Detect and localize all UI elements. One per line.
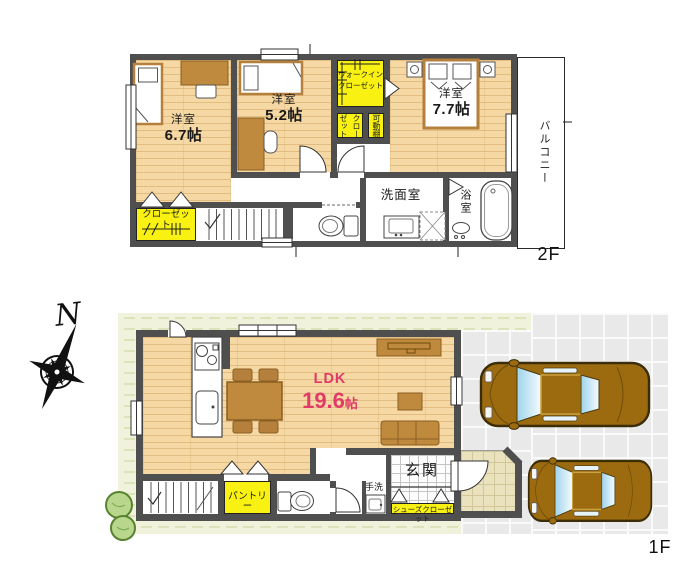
front-door-icon — [451, 449, 520, 491]
wic-label: ウォークイン クローゼット — [337, 70, 384, 92]
car-icon — [481, 360, 649, 430]
door-arc-icon — [300, 146, 364, 178]
toilet-1f-icon — [278, 488, 360, 512]
desk-icon — [238, 118, 277, 170]
kitchen-door-icon — [168, 321, 186, 337]
kitchen-icon — [192, 337, 222, 437]
stairs-1f-icon — [148, 482, 213, 513]
bathtub-icon — [481, 181, 512, 240]
ldk-label: LDK 19.6帖 — [295, 371, 365, 413]
bath-stool-icon — [453, 223, 470, 239]
hand-wash-label: 手洗 — [358, 482, 390, 492]
closet-small-label: クローゼット — [337, 112, 363, 139]
floor1-label: 1F — [643, 537, 677, 558]
wic-door-icon — [385, 78, 399, 99]
north-label: N — [52, 296, 84, 334]
shoe-closet-label: シューズクローゼット — [392, 505, 453, 523]
floor2-label: 2F — [532, 244, 566, 265]
tv-board-icon — [377, 339, 441, 356]
closet-bifold-icon — [140, 192, 193, 207]
hand-wash-icon — [366, 495, 385, 513]
washroom-label: 洗面室 — [367, 188, 435, 202]
compass-icon: N — [14, 296, 104, 420]
bedroom2-label: 洋室 5.2帖 — [247, 94, 321, 124]
pantry-label: パントリー — [226, 492, 269, 513]
movable-shelf-label: 可動棚 — [369, 114, 384, 138]
car-icon — [529, 458, 652, 524]
pantry-bifold-icon — [221, 461, 269, 474]
washer-pan-icon — [420, 212, 445, 240]
sofa-icon — [381, 421, 439, 445]
dining-set-icon — [227, 369, 282, 433]
stairs-2f-icon — [205, 209, 276, 240]
bedroom3-label: 洋室 7.7帖 — [414, 88, 489, 118]
side-table-icon — [398, 393, 422, 410]
bathroom-label: 浴室 — [456, 184, 471, 220]
balcony-label: バルコニー — [528, 112, 550, 192]
desk-icon — [181, 61, 228, 98]
entrance-step-line — [391, 487, 454, 502]
closet-bottom-label: クローゼット — [139, 210, 193, 232]
washbasin-2f-icon — [384, 216, 419, 238]
entrance-label: 玄関 — [397, 462, 447, 479]
bedroom1-label: 洋室 6.7帖 — [146, 114, 221, 144]
tree-icon — [106, 492, 135, 540]
toilet-2f-icon — [319, 202, 358, 236]
floor-plan-page: N 洋室 6.7帖 洋室 5.2帖 洋室 7.7帖 ウォークイン クローゼット … — [0, 0, 700, 579]
bed-single-icon — [240, 62, 302, 94]
